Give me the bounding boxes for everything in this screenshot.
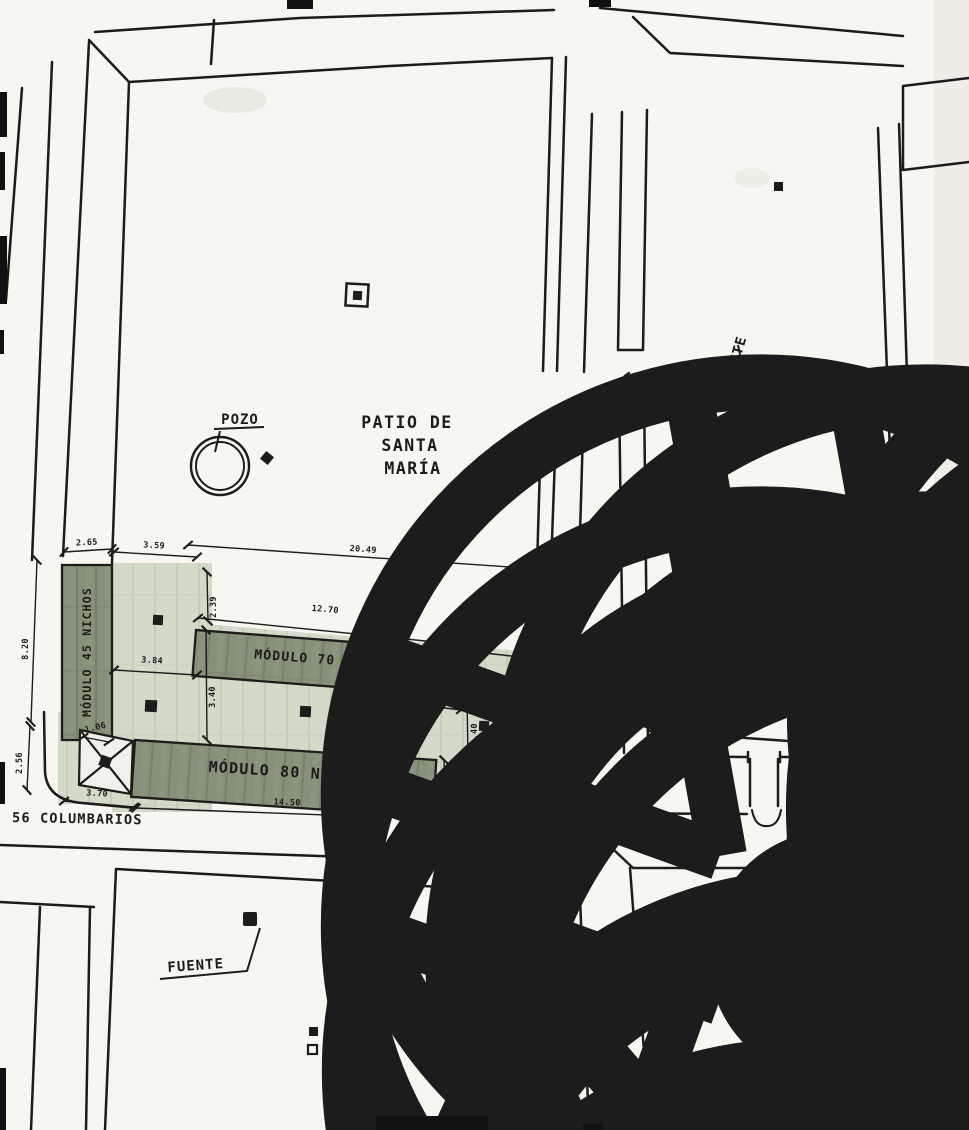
patio-santiago-label-1: PATIO DE — [815, 991, 906, 1010]
dim-label: 3.59 — [143, 540, 165, 551]
dim-line — [206, 630, 207, 740]
dim-label: 2.56 — [15, 752, 25, 774]
dim-line — [207, 572, 208, 621]
dim-label: 3.70 — [86, 788, 108, 799]
patio-san-juan-label-1: PATIO DE — [343, 991, 434, 1010]
marker-square-icon — [763, 624, 772, 633]
fountain-square-icon — [243, 912, 257, 926]
fountain-step-icon — [765, 1038, 777, 1049]
marker-square-icon — [774, 182, 783, 191]
patio-san-jose-label-1: PATIO DE — [659, 687, 750, 706]
scan-smudge-icon — [203, 87, 267, 113]
dim-label: 3.40 — [208, 686, 218, 708]
scan-smudge-icon — [734, 168, 770, 188]
site-plan-page: MÓDULO 45 NICHOS MÓDULO 70 NICHOS MÓDULO… — [0, 0, 969, 1130]
patio-san-juan-label-2: SAN JUAN — [343, 1016, 434, 1035]
marker-square-icon — [145, 700, 158, 713]
columbarios-label: 56 COLUMBARIOS — [12, 810, 143, 828]
dim-label: 2.65 — [76, 537, 98, 548]
marker-square-icon — [309, 1027, 318, 1036]
fuente-santiago-label: FUENTE — [702, 1083, 759, 1101]
site-plan-drawing: MÓDULO 45 NICHOS MÓDULO 70 NICHOS MÓDULO… — [0, 0, 969, 1130]
dim-label: 20.49 — [349, 544, 377, 556]
dim-label: 8.20 — [21, 638, 31, 660]
patio-santiago-label-2: SANTIAGO — [820, 1015, 911, 1034]
marker-square-icon — [479, 721, 490, 732]
dim-label: 14.50 — [273, 798, 300, 809]
marker-square-icon — [153, 615, 164, 626]
patio-santa-maria-label-2: SANTA — [381, 436, 438, 455]
module-45-label: MÓDULO 45 NICHOS — [79, 587, 94, 717]
crossed-planter — [79, 730, 133, 794]
patio-santa-maria-label-3: MARÍA — [384, 459, 441, 478]
dim-label: 2.39 — [209, 596, 219, 618]
patio-santa-maria-label-1: PATIO DE — [361, 413, 452, 432]
marker-square-icon — [764, 949, 774, 959]
dim-label: 3.84 — [141, 655, 163, 666]
marker-square-icon — [300, 706, 312, 718]
patio-san-jose-label-2: SAN JOSE — [657, 712, 748, 731]
pozo-label: POZO — [221, 412, 259, 428]
